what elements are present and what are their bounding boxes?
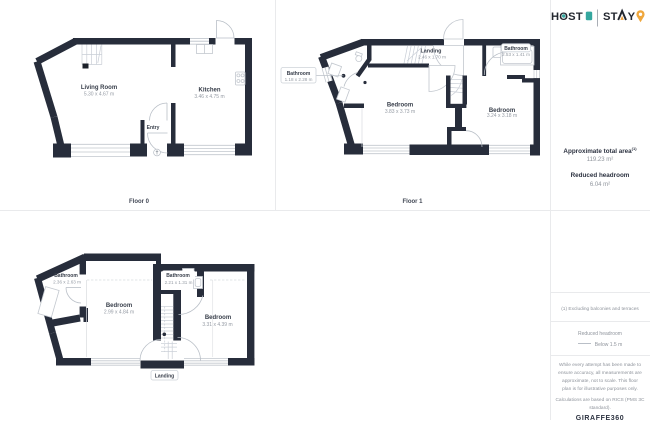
svg-text:Entry: Entry [147, 125, 160, 131]
svg-text:1.18 x 2.28 m: 1.18 x 2.28 m [285, 77, 313, 82]
svg-text:Floor 0: Floor 0 [129, 199, 150, 205]
svg-text:Bathroom: Bathroom [504, 46, 528, 52]
svg-text:3.46 x 4.75 m: 3.46 x 4.75 m [194, 94, 224, 100]
svg-text:Living Room: Living Room [81, 85, 117, 91]
svg-text:3.83 x 3.73 m: 3.83 x 3.73 m [385, 109, 415, 115]
svg-text:Floor 1: Floor 1 [402, 199, 423, 205]
svg-text:3.24 x 3.18 m: 3.24 x 3.18 m [487, 113, 517, 119]
svg-text:HOST: HOST [551, 11, 583, 23]
svg-text:Landing: Landing [155, 374, 174, 380]
svg-text:Bathroom: Bathroom [54, 273, 78, 279]
svg-text:2.46 x 1.70 m: 2.46 x 1.70 m [418, 55, 446, 60]
svg-text:Kitchen: Kitchen [198, 88, 220, 94]
svg-text:ST: ST [603, 11, 618, 23]
svg-text:2.21 x 1.31 m: 2.21 x 1.31 m [165, 280, 193, 285]
svg-text:Bedroom: Bedroom [387, 102, 413, 108]
svg-text:5.30 x 4.67 m: 5.30 x 4.67 m [84, 92, 114, 98]
svg-text:2.53 x 1.41 m: 2.53 x 1.41 m [502, 52, 530, 57]
svg-text:Bedroom: Bedroom [205, 315, 231, 321]
svg-text:Bedroom: Bedroom [106, 303, 132, 309]
svg-text:Bathroom: Bathroom [166, 273, 190, 279]
svg-text:Landing: Landing [421, 49, 442, 55]
svg-text:2.36 x 2.63 m: 2.36 x 2.63 m [53, 280, 81, 285]
svg-text:2.99 x 4.84 m: 2.99 x 4.84 m [104, 310, 134, 316]
svg-text:Y: Y [628, 11, 636, 23]
svg-text:3.31 x 4.39 m: 3.31 x 4.39 m [202, 322, 232, 328]
